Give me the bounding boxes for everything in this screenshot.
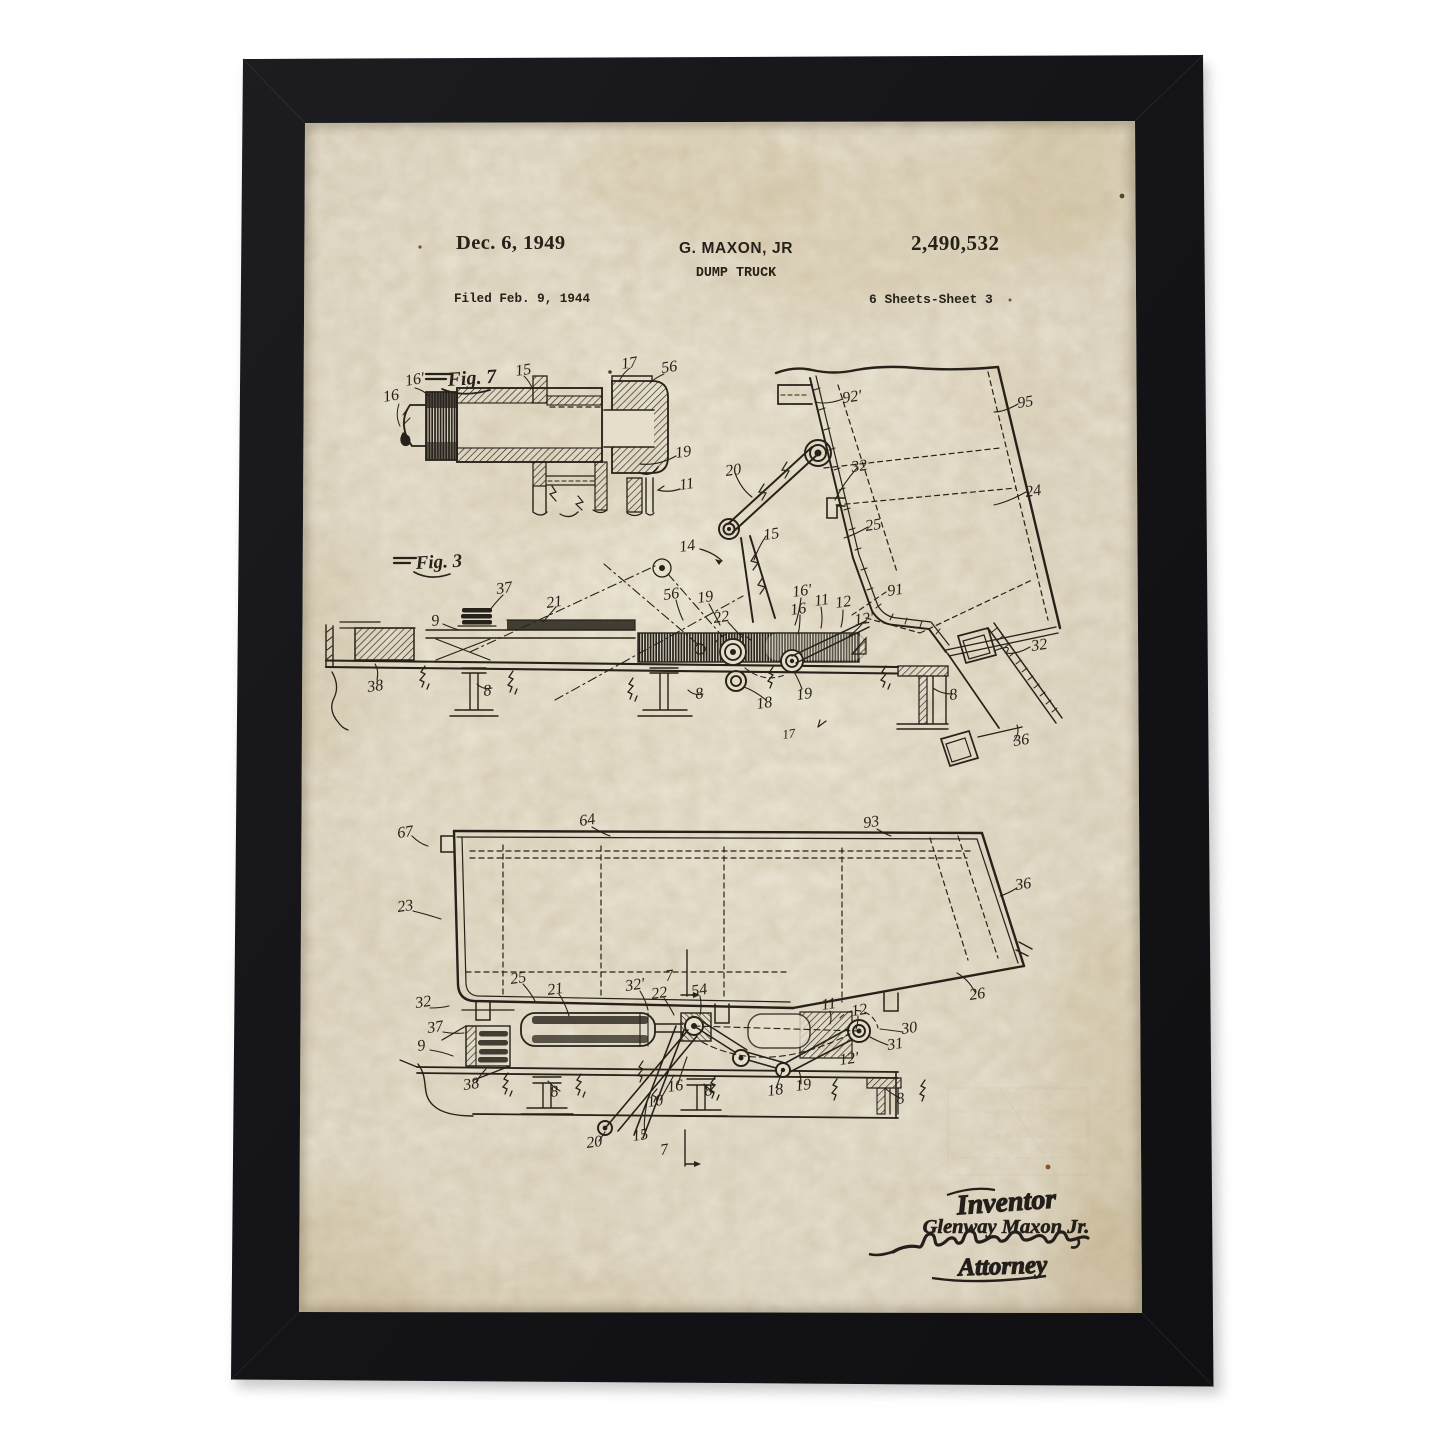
svg-text:21: 21: [545, 593, 563, 612]
svg-text:G. MAXON, JR: G. MAXON, JR: [679, 240, 793, 257]
svg-text:32: 32: [1029, 636, 1048, 655]
svg-text:38: 38: [461, 1075, 480, 1094]
svg-text:12: 12: [834, 593, 852, 612]
svg-text:19: 19: [795, 685, 813, 704]
svg-text:16: 16: [666, 1077, 684, 1096]
svg-text:Dec. 6, 1949: Dec. 6, 1949: [456, 232, 566, 254]
svg-text:91: 91: [886, 581, 904, 600]
svg-text:18: 18: [755, 694, 773, 713]
svg-text:6 Sheets-Sheet 3: 6 Sheets-Sheet 3: [869, 292, 993, 307]
svg-text:38: 38: [365, 677, 384, 696]
svg-text:20: 20: [724, 461, 742, 480]
svg-text:25: 25: [864, 516, 882, 535]
svg-text:23: 23: [396, 897, 414, 916]
svg-text:37: 37: [425, 1018, 445, 1037]
svg-text:18: 18: [766, 1081, 784, 1100]
svg-text:22: 22: [650, 984, 668, 1003]
svg-text:16: 16: [382, 386, 401, 406]
svg-text:16: 16: [789, 600, 807, 619]
svg-text:32: 32: [413, 993, 432, 1012]
svg-text:20: 20: [585, 1133, 603, 1152]
svg-text:15: 15: [514, 361, 532, 380]
svg-text:32′: 32′: [623, 975, 646, 995]
svg-text:32: 32: [849, 457, 868, 476]
svg-text:56: 56: [662, 585, 680, 604]
svg-text:19: 19: [696, 588, 714, 607]
svg-text:DUMP TRUCK: DUMP TRUCK: [696, 266, 777, 281]
svg-text:93: 93: [862, 813, 880, 832]
svg-text:26: 26: [968, 985, 986, 1004]
svg-text:31: 31: [885, 1035, 904, 1054]
svg-text:11: 11: [820, 995, 837, 1014]
svg-text:15: 15: [762, 525, 780, 544]
svg-text:14: 14: [678, 537, 696, 556]
svg-text:12′: 12′: [853, 609, 875, 629]
svg-text:16′: 16′: [791, 581, 813, 601]
svg-text:2,490,532: 2,490,532: [911, 231, 1000, 255]
svg-text:21: 21: [546, 980, 564, 999]
svg-text:95: 95: [1016, 393, 1034, 412]
svg-text:54: 54: [690, 981, 708, 1000]
svg-text:92′: 92′: [841, 387, 863, 407]
svg-text:56: 56: [660, 358, 678, 377]
svg-text:19: 19: [794, 1076, 812, 1095]
svg-text:30: 30: [899, 1019, 918, 1038]
svg-text:15: 15: [631, 1126, 649, 1145]
svg-text:11: 11: [678, 475, 695, 494]
svg-text:11: 11: [813, 591, 830, 610]
svg-text:17: 17: [781, 725, 796, 742]
svg-text:16′: 16′: [404, 370, 427, 390]
svg-text:22: 22: [712, 608, 730, 627]
svg-text:36: 36: [1011, 731, 1030, 750]
svg-text:36: 36: [1013, 875, 1032, 894]
svg-text:24: 24: [1024, 482, 1042, 501]
svg-text:Fig. 3: Fig. 3: [414, 551, 462, 574]
svg-text:64: 64: [578, 811, 596, 830]
svg-text:25: 25: [509, 969, 527, 988]
svg-text:Filed Feb. 9, 1944: Filed Feb. 9, 1944: [454, 292, 590, 306]
svg-text:12: 12: [850, 1001, 868, 1020]
svg-text:10: 10: [646, 1092, 664, 1111]
svg-text:37: 37: [494, 579, 514, 598]
svg-text:12′: 12′: [838, 1049, 860, 1069]
svg-text:19: 19: [674, 443, 692, 462]
